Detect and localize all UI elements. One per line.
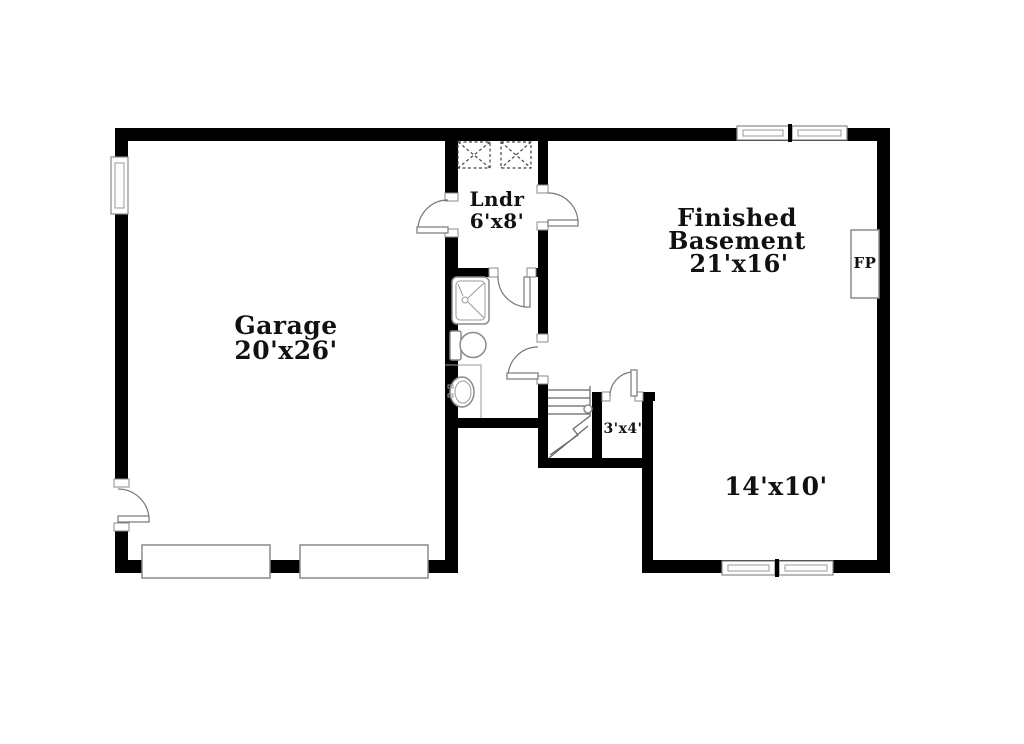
laundry-name: Lndr xyxy=(469,187,524,211)
toilet-icon xyxy=(450,331,486,360)
window-pane xyxy=(722,561,775,575)
garage-door-left xyxy=(142,545,270,578)
wall-stair-right xyxy=(592,392,602,468)
basement-dims: 21'x16' xyxy=(689,249,788,278)
jamb xyxy=(537,376,548,384)
window-pane xyxy=(737,126,789,140)
closet-dims: 3'x4' xyxy=(604,421,643,437)
jamb xyxy=(114,523,129,531)
door-leaf xyxy=(507,373,538,379)
jamb xyxy=(489,268,498,277)
jamb xyxy=(602,392,610,401)
laundry-dims: 6'x8' xyxy=(470,209,525,233)
wall-bath-bottom xyxy=(445,418,548,428)
jamb xyxy=(114,479,129,487)
bottom-right-window xyxy=(722,559,833,577)
stair-newel xyxy=(584,405,592,413)
jamb xyxy=(527,268,536,277)
door-leaf xyxy=(524,277,530,307)
window-mullion xyxy=(788,124,792,142)
left-window xyxy=(111,157,128,214)
fireplace-label: FP xyxy=(854,254,877,272)
wall-right xyxy=(877,128,890,573)
shower-icon xyxy=(452,277,489,324)
wall-notch-left xyxy=(642,392,653,573)
door-leaf xyxy=(548,220,578,226)
opening-laundry-basement xyxy=(537,192,549,223)
garage-dims: 20'x26' xyxy=(234,336,337,365)
window-pane xyxy=(111,157,128,214)
wall-laundry-basement xyxy=(538,128,548,468)
opening-garage-laundry xyxy=(444,200,459,230)
top-right-window xyxy=(737,124,847,142)
jamb xyxy=(537,334,548,342)
rec-area-dims: 14'x10' xyxy=(724,472,827,501)
opening-bath-top xyxy=(497,267,528,278)
window-pane xyxy=(792,126,847,140)
opening-bath-hall xyxy=(537,341,549,377)
garage-door-right xyxy=(300,545,428,578)
plan-background xyxy=(0,0,1024,744)
fireplace: FP xyxy=(851,230,879,298)
toilet-bowl xyxy=(460,333,486,358)
jamb xyxy=(537,185,548,193)
door-leaf xyxy=(417,227,448,233)
window-pane xyxy=(779,561,833,575)
door-leaf xyxy=(118,516,149,522)
floor-plan: FP Garage 20'x26' Lndr 6'x8' Finished Ba… xyxy=(0,0,1024,744)
window-mullion xyxy=(775,559,779,577)
jamb xyxy=(537,222,548,230)
door-leaf xyxy=(631,370,637,396)
